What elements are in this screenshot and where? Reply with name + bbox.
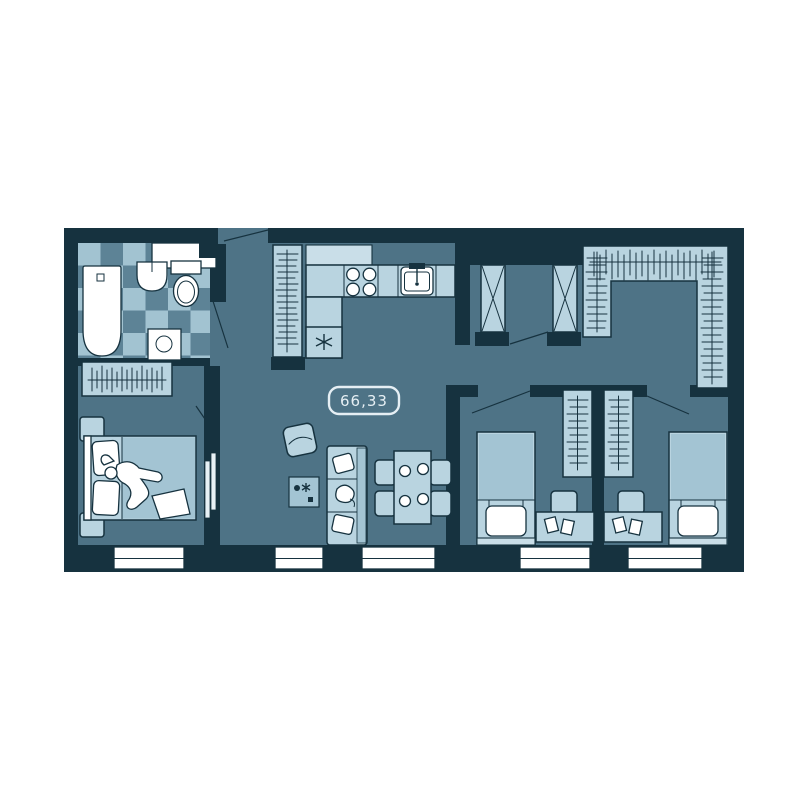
floor-plan: 66,33 bbox=[0, 0, 800, 800]
window bbox=[520, 547, 590, 569]
counter-notch bbox=[199, 243, 216, 258]
single-bed bbox=[477, 432, 535, 545]
plate bbox=[400, 496, 411, 507]
window bbox=[628, 547, 702, 569]
double-bed bbox=[84, 436, 196, 520]
wall-right bbox=[728, 228, 744, 572]
plinth-shaft1 bbox=[475, 332, 509, 346]
bathtub bbox=[83, 266, 121, 356]
single-bed bbox=[669, 432, 727, 545]
sliding-door-panel bbox=[211, 453, 216, 510]
plinth-shaft2 bbox=[547, 332, 581, 346]
window bbox=[114, 547, 184, 569]
ventilation-shaft bbox=[481, 265, 505, 332]
floor-corridor-opening bbox=[450, 345, 470, 385]
desk-chair bbox=[551, 491, 577, 514]
dining-table bbox=[394, 451, 431, 524]
plate bbox=[418, 494, 429, 505]
wall-left bbox=[64, 228, 78, 572]
cup-icon bbox=[294, 485, 300, 491]
window bbox=[275, 547, 323, 569]
wall-kitchen-corridor bbox=[455, 228, 470, 345]
dining-chair bbox=[375, 491, 396, 516]
ventilation-shaft bbox=[553, 265, 577, 332]
kitchen-sink bbox=[401, 263, 433, 295]
plinth-kitchen-wardrobe bbox=[271, 357, 305, 370]
plate bbox=[400, 466, 411, 477]
person-head bbox=[105, 467, 117, 479]
papers bbox=[629, 519, 643, 535]
bed-blanket bbox=[671, 434, 725, 500]
window bbox=[362, 547, 435, 569]
toilet-tank bbox=[171, 261, 201, 274]
bed-pillow bbox=[486, 506, 526, 536]
entrance bbox=[218, 228, 272, 244]
floor-plan-page: 66,33 bbox=[0, 0, 800, 800]
desk-chair bbox=[618, 491, 644, 514]
coffee-table bbox=[289, 477, 319, 507]
bed-pillow bbox=[678, 506, 718, 536]
plate bbox=[418, 464, 429, 475]
remote-icon bbox=[308, 497, 313, 502]
fridge bbox=[306, 327, 342, 358]
bed-headboard bbox=[84, 436, 91, 520]
armchair bbox=[282, 422, 318, 458]
dining-chair bbox=[430, 491, 451, 516]
kitchen-upper-cabinet bbox=[306, 245, 372, 265]
dining-chair bbox=[430, 460, 451, 485]
sofa-pillow bbox=[331, 514, 354, 535]
wall-top bbox=[64, 228, 744, 243]
area-label-text: 66,33 bbox=[340, 392, 388, 410]
sofa bbox=[327, 446, 367, 545]
sliding-door-panel bbox=[205, 461, 210, 518]
wall-above-shafts bbox=[455, 228, 583, 265]
dining-chair bbox=[375, 460, 396, 485]
bed-headboard bbox=[669, 538, 727, 545]
sofa-backrest bbox=[357, 448, 366, 543]
bed-blanket bbox=[479, 434, 533, 500]
bed-pillow bbox=[92, 480, 120, 515]
floor-cabinet bbox=[148, 329, 181, 360]
papers bbox=[561, 519, 575, 535]
bed-headboard bbox=[477, 538, 535, 545]
